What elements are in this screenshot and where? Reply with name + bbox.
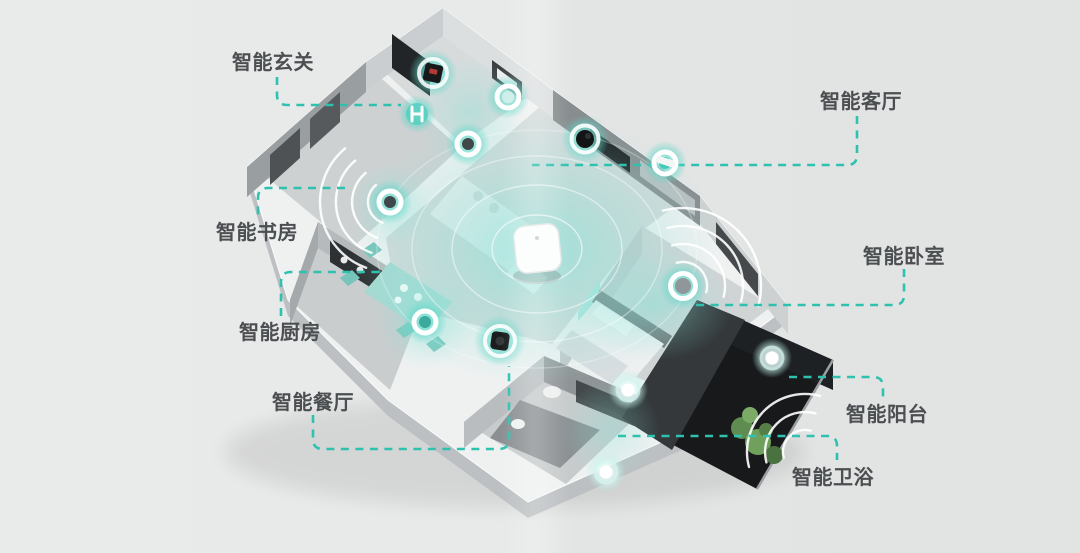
label-bathroom: 智能卫浴 <box>792 465 874 489</box>
bathroom-light-lower-icon <box>586 452 626 492</box>
kitchen-sensor-icon <box>403 300 447 344</box>
scene-canvas: 智能玄关 智能客厅 智能书房 智能厨房 智能餐厅 智能卧室 智能阳台 智能卫浴 <box>0 0 1080 553</box>
background-light-band <box>500 0 570 553</box>
label-entrance: 智能玄关 <box>232 50 314 74</box>
label-study: 智能书房 <box>216 220 298 244</box>
smart-home-diagram: 智能玄关 智能客厅 智能书房 智能厨房 智能餐厅 智能卧室 智能阳台 智能卫浴 <box>0 0 1080 553</box>
bathroom-light-upper-icon <box>608 370 648 410</box>
wall-controller-icon <box>643 141 687 185</box>
label-dining: 智能餐厅 <box>272 390 354 414</box>
smart-control-panel-icon <box>409 49 457 97</box>
balcony-light-icon <box>752 338 792 378</box>
label-kitchen: 智能厨房 <box>239 320 321 344</box>
wireless-speaker-icon <box>368 180 412 224</box>
label-bedroom: 智能卧室 <box>863 244 945 268</box>
smart-speaker-icon <box>446 122 490 166</box>
label-balcony: 智能阳台 <box>846 402 928 426</box>
label-living: 智能客厅 <box>820 89 902 113</box>
bedroom-sensor-icon <box>659 262 707 310</box>
smart-door-lock-icon <box>398 95 436 133</box>
